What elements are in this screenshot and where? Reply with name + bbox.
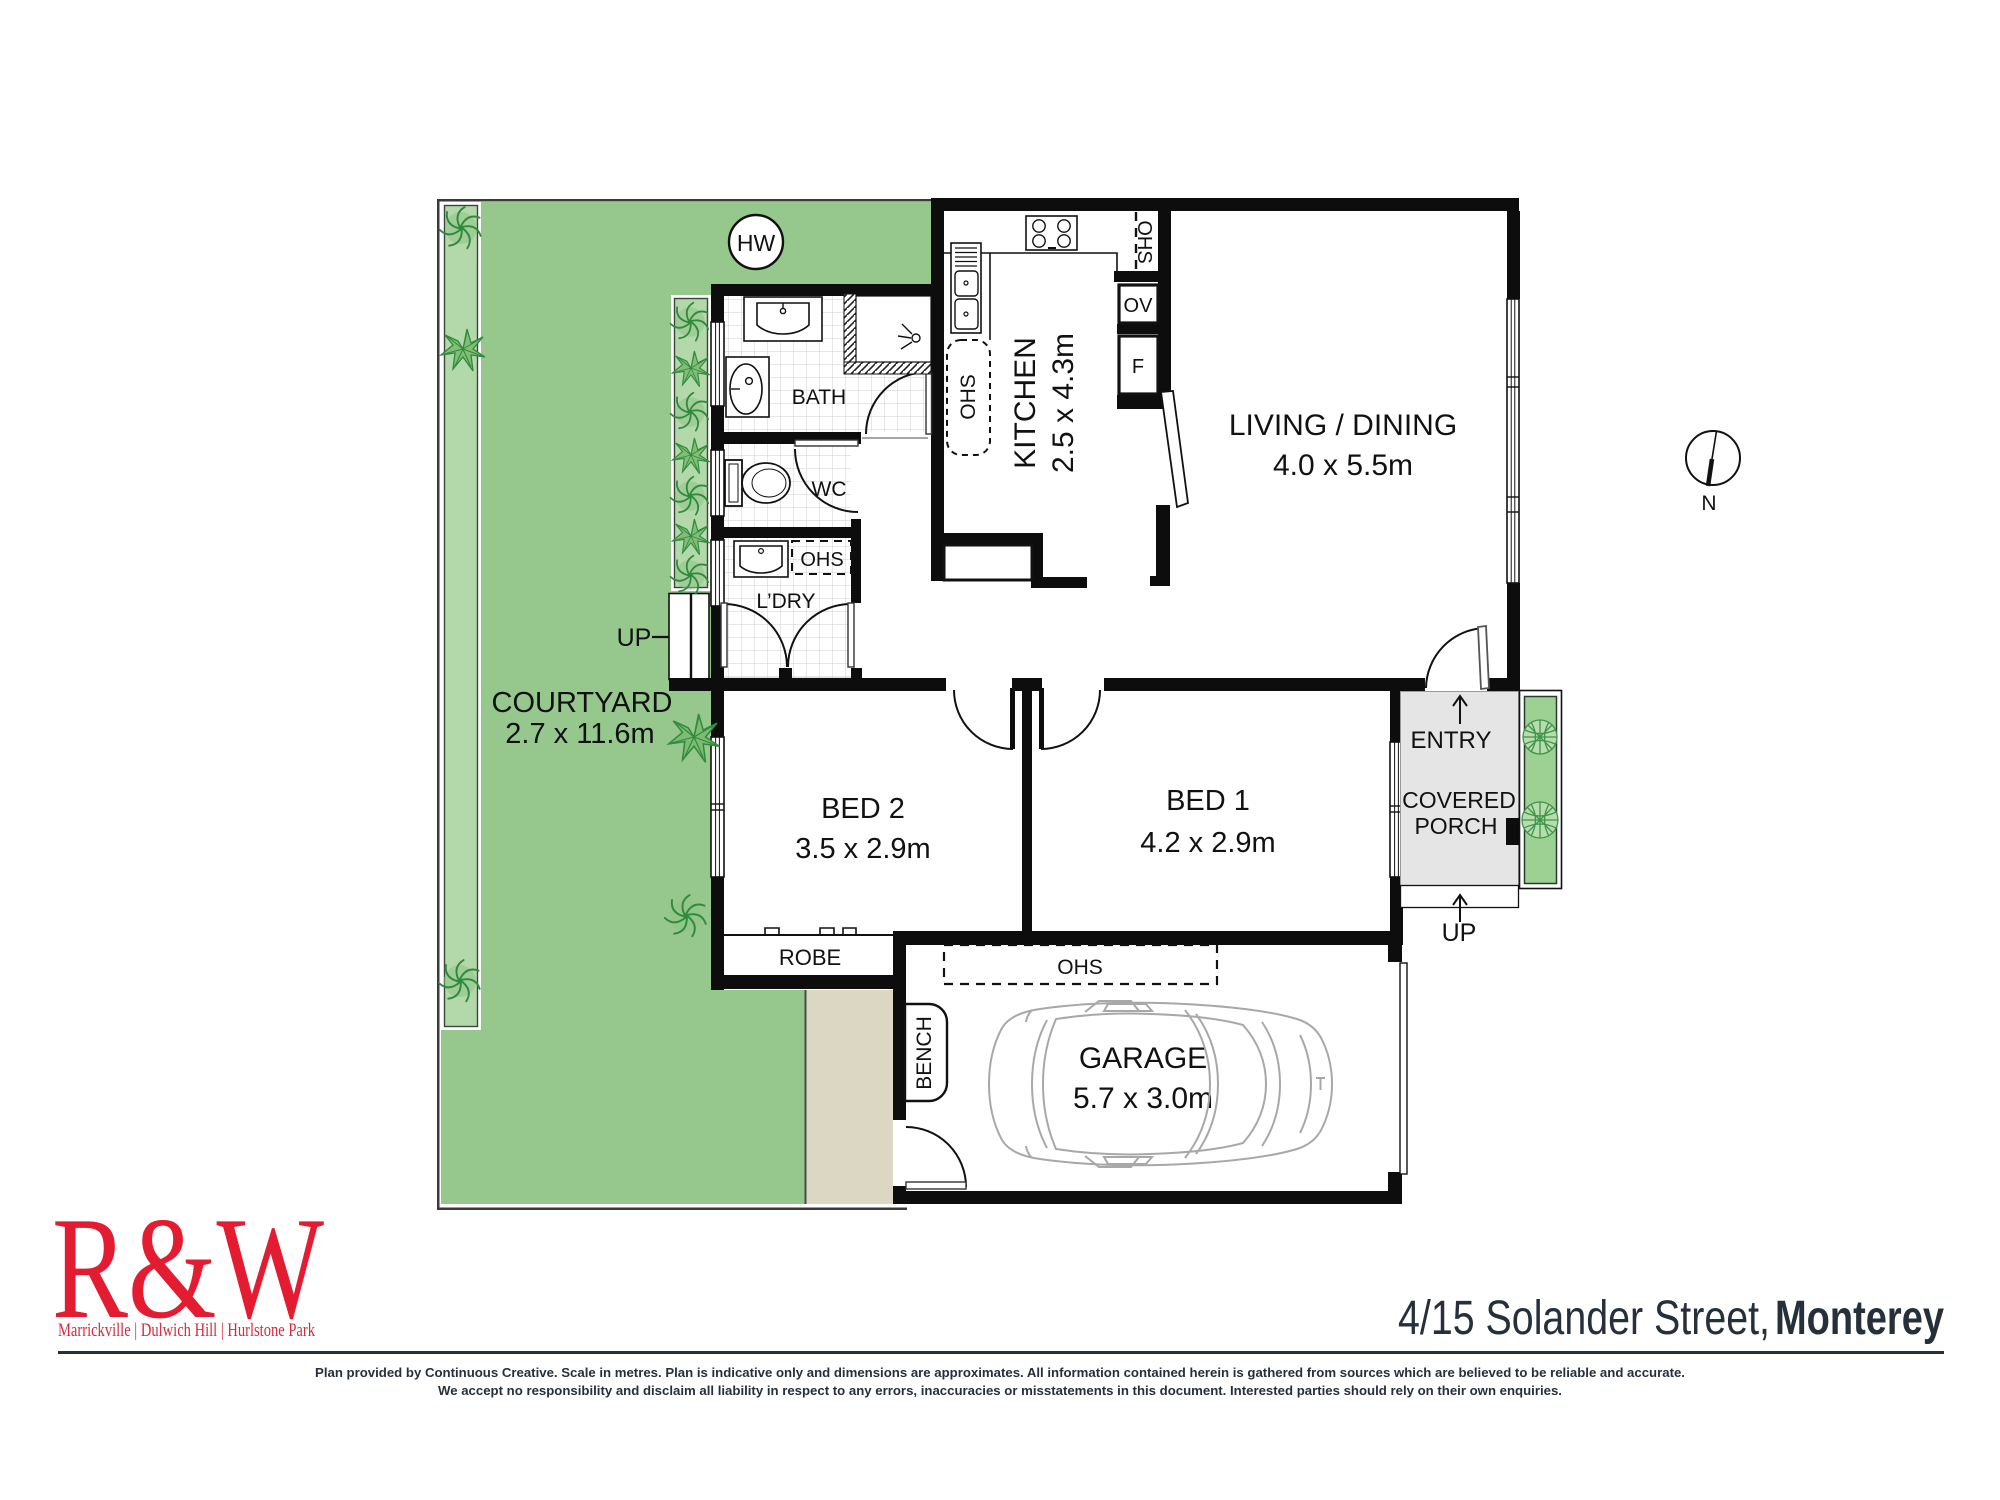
svg-text:F: F [1132, 356, 1144, 378]
svg-text:We accept no responsibility an: We accept no responsibility and disclaim… [438, 1383, 1562, 1398]
svg-text:BENCH: BENCH [913, 1016, 936, 1090]
svg-text:COURTYARD: COURTYARD [492, 687, 673, 719]
svg-text:BED 2: BED 2 [821, 793, 905, 825]
svg-text:ENTRY: ENTRY [1411, 727, 1492, 754]
svg-text:OHS: OHS [957, 374, 980, 420]
svg-text:4/15 Solander Street,: 4/15 Solander Street, [1398, 1292, 1770, 1345]
svg-text:3.5 x 2.9m: 3.5 x 2.9m [795, 833, 930, 865]
svg-text:UP: UP [1442, 919, 1477, 947]
svg-text:OHS: OHS [1133, 220, 1155, 263]
svg-text:OHS: OHS [800, 549, 843, 571]
svg-text:2.7 x 11.6m: 2.7 x 11.6m [505, 718, 654, 750]
svg-text:LIVING / DINING: LIVING / DINING [1229, 409, 1457, 442]
svg-text:COVERED: COVERED [1402, 787, 1516, 813]
svg-text:BED 1: BED 1 [1166, 785, 1250, 817]
svg-text:Monterey: Monterey [1775, 1292, 1944, 1345]
svg-text:HW: HW [737, 230, 776, 256]
svg-text:BATH: BATH [792, 386, 846, 409]
svg-text:OV: OV [1124, 295, 1154, 317]
svg-text:Marrickville | Dulwich Hill |: Marrickville | Dulwich Hill | Hurlstone … [58, 1320, 315, 1341]
svg-text:KITCHEN: KITCHEN [1009, 337, 1042, 469]
svg-text:ROBE: ROBE [779, 945, 841, 970]
svg-text:2.5 x 4.3m: 2.5 x 4.3m [1047, 333, 1080, 473]
svg-text:PORCH: PORCH [1414, 813, 1497, 839]
svg-text:4.0 x 5.5m: 4.0 x 5.5m [1273, 449, 1413, 482]
svg-text:Plan provided by Continuous Cr: Plan provided by Continuous Creative. Sc… [315, 1365, 1685, 1380]
svg-text:5.7 x 3.0m: 5.7 x 3.0m [1073, 1082, 1213, 1115]
svg-text:4.2 x 2.9m: 4.2 x 2.9m [1140, 827, 1275, 859]
svg-text:UP: UP [617, 624, 652, 652]
svg-text:N: N [1701, 492, 1716, 515]
svg-text:OHS: OHS [1057, 956, 1103, 979]
svg-text:L’DRY: L’DRY [756, 590, 815, 613]
svg-text:GARAGE: GARAGE [1079, 1042, 1207, 1075]
